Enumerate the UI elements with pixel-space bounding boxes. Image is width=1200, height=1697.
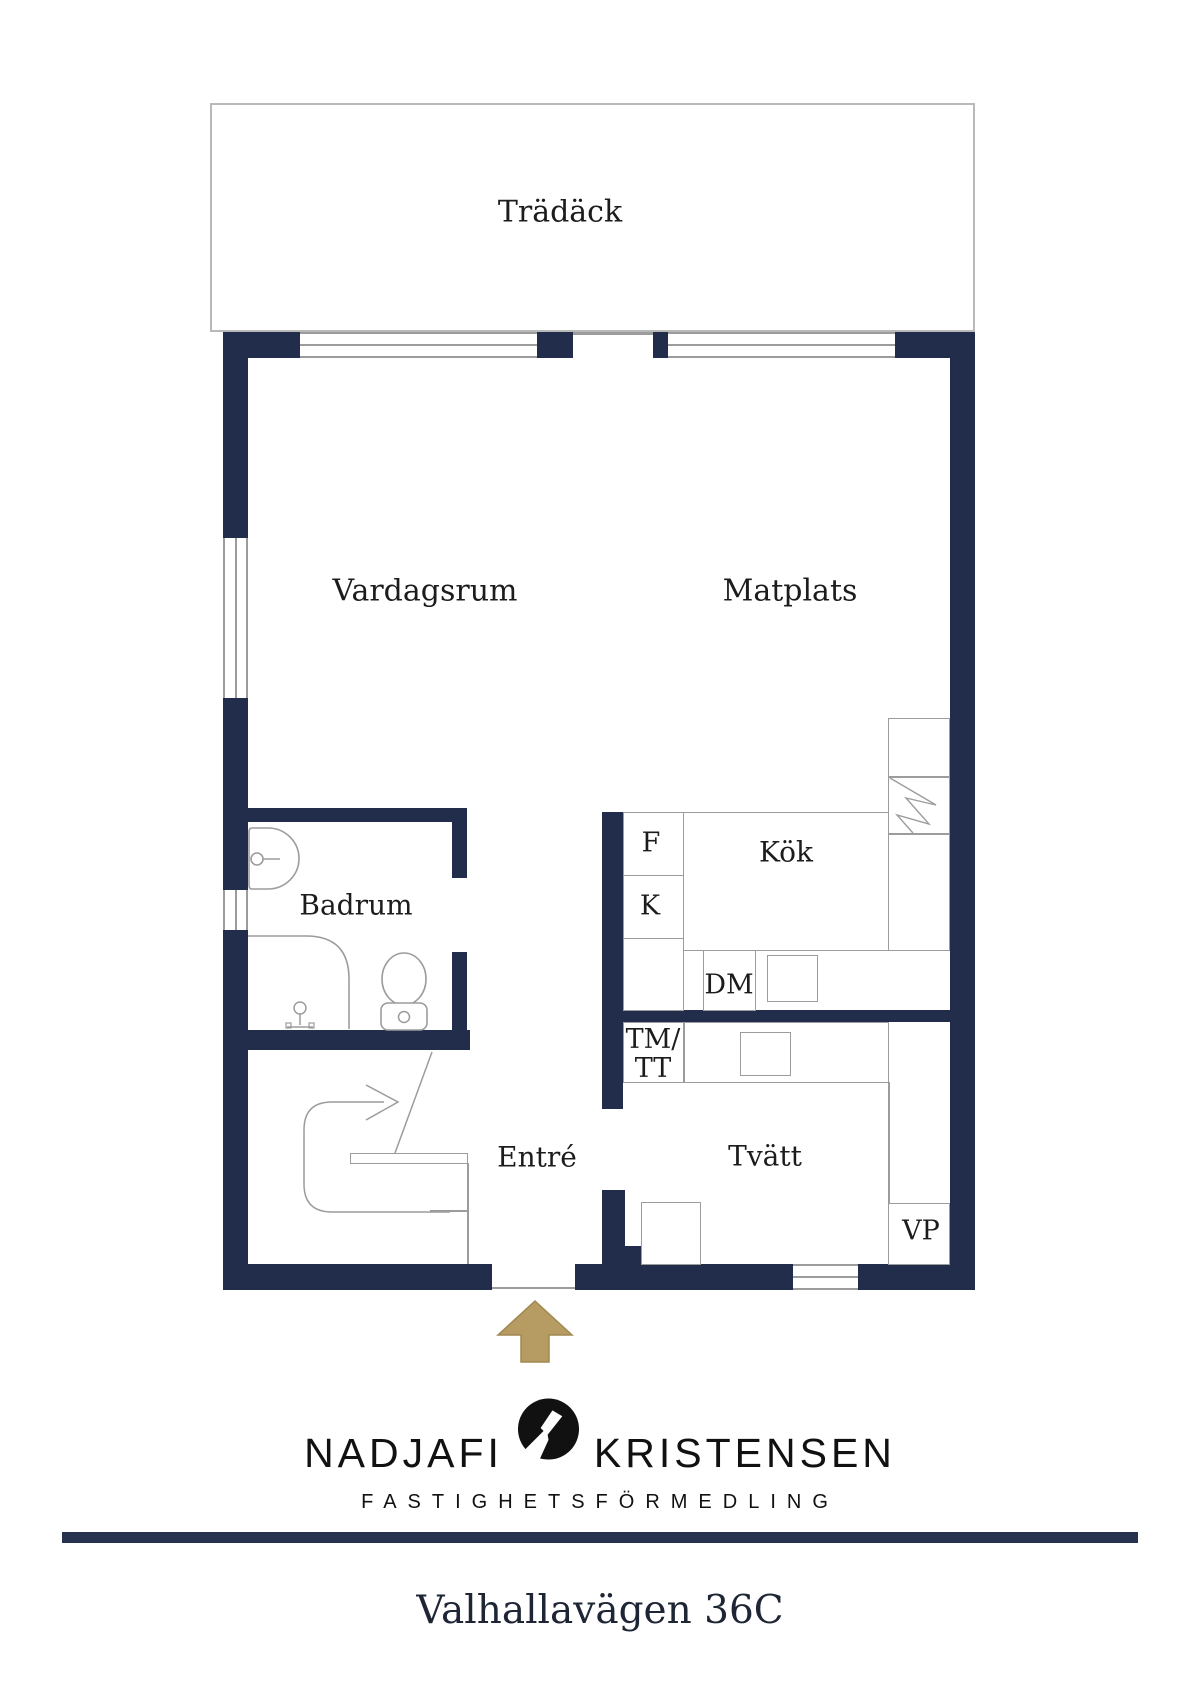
wall-segment bbox=[223, 1264, 492, 1290]
brand-logo-icon bbox=[517, 1398, 580, 1462]
brand-name-right: KRISTENSEN bbox=[594, 1430, 896, 1477]
shower-icon bbox=[248, 936, 349, 1029]
kitchen-label: Kök bbox=[759, 836, 813, 869]
washer-dryer-label: TM/ TT bbox=[626, 1025, 681, 1083]
stair-diagonal-line bbox=[395, 1052, 432, 1153]
sink-tap-icon bbox=[251, 853, 263, 865]
wall-segment bbox=[625, 1246, 641, 1264]
bathroom-label: Badrum bbox=[299, 889, 412, 922]
address-label: Valhallavägen 36C bbox=[0, 1588, 1200, 1633]
brand-block: NADJAFI KRISTENSEN FASTIGHETSFÖRMEDLING bbox=[0, 1398, 1200, 1514]
stair-platform bbox=[350, 1153, 468, 1164]
wall-segment bbox=[858, 1264, 975, 1290]
stair-step-line bbox=[430, 1210, 468, 1212]
deck-door-opening bbox=[573, 332, 653, 335]
wall-segment bbox=[223, 358, 248, 538]
wall-segment bbox=[602, 1010, 950, 1022]
entry-arrow-icon bbox=[498, 1301, 572, 1362]
wall-segment bbox=[950, 358, 975, 1264]
sink-icon bbox=[249, 828, 299, 889]
window bbox=[793, 1264, 858, 1290]
window bbox=[668, 332, 895, 358]
wall-segment bbox=[223, 698, 248, 890]
window bbox=[223, 890, 248, 930]
laundry-cabinet bbox=[641, 1202, 701, 1265]
shower-mixer-icon bbox=[294, 1002, 306, 1014]
freezer-label: K bbox=[640, 891, 660, 922]
counter-divider bbox=[888, 776, 950, 778]
washer-label: TM/ bbox=[626, 1025, 681, 1054]
kitchen-floor-outline bbox=[683, 812, 889, 951]
wall-segment bbox=[653, 332, 668, 358]
window bbox=[300, 332, 537, 358]
stair-arrowhead-icon bbox=[366, 1085, 398, 1120]
wall-segment bbox=[240, 808, 467, 822]
living-room-label: Vardagsrum bbox=[333, 574, 518, 609]
laundry-bench-divider bbox=[683, 1022, 685, 1083]
wall-segment bbox=[895, 332, 975, 358]
divider-rule bbox=[62, 1532, 1138, 1543]
wall-segment bbox=[602, 1190, 625, 1264]
fridge-label: F bbox=[642, 828, 661, 859]
dryer-label: TT bbox=[626, 1054, 681, 1083]
stair-edge-line bbox=[467, 1163, 469, 1264]
entry-label: Entré bbox=[497, 1141, 577, 1174]
wall-segment bbox=[223, 332, 300, 358]
dining-label: Matplats bbox=[723, 574, 858, 609]
entry-threshold bbox=[492, 1287, 575, 1289]
toilet-icon bbox=[399, 1012, 410, 1023]
brand-tagline: FASTIGHETSFÖRMEDLING bbox=[0, 1491, 1200, 1514]
wall-segment bbox=[602, 812, 623, 1109]
brand-name-left: NADJAFI bbox=[304, 1430, 503, 1477]
shower-mixer-icon bbox=[309, 1023, 314, 1028]
counter-cell bbox=[623, 938, 684, 1011]
shower-mixer-icon bbox=[286, 1023, 291, 1028]
toilet-icon bbox=[381, 1003, 427, 1030]
wall-segment bbox=[223, 930, 248, 1264]
laundry-sink-unit bbox=[740, 1032, 791, 1076]
wall-segment bbox=[537, 332, 573, 358]
counter-right bbox=[888, 718, 950, 951]
laundry-label: Tvätt bbox=[728, 1140, 802, 1173]
wall-segment bbox=[452, 808, 467, 878]
counter-divider bbox=[888, 833, 950, 835]
kitchen-sink-unit bbox=[767, 955, 818, 1002]
deck-label: Trädäck bbox=[498, 195, 622, 230]
laundry-boundary-line bbox=[888, 1082, 890, 1203]
window bbox=[223, 538, 248, 698]
wall-segment bbox=[452, 952, 467, 1030]
dishwasher-label: DM bbox=[704, 970, 753, 1001]
wall-segment bbox=[240, 1030, 470, 1050]
toilet-icon bbox=[382, 953, 426, 1005]
heat-pump-label: VP bbox=[902, 1216, 940, 1247]
wall-segment bbox=[575, 1264, 793, 1290]
